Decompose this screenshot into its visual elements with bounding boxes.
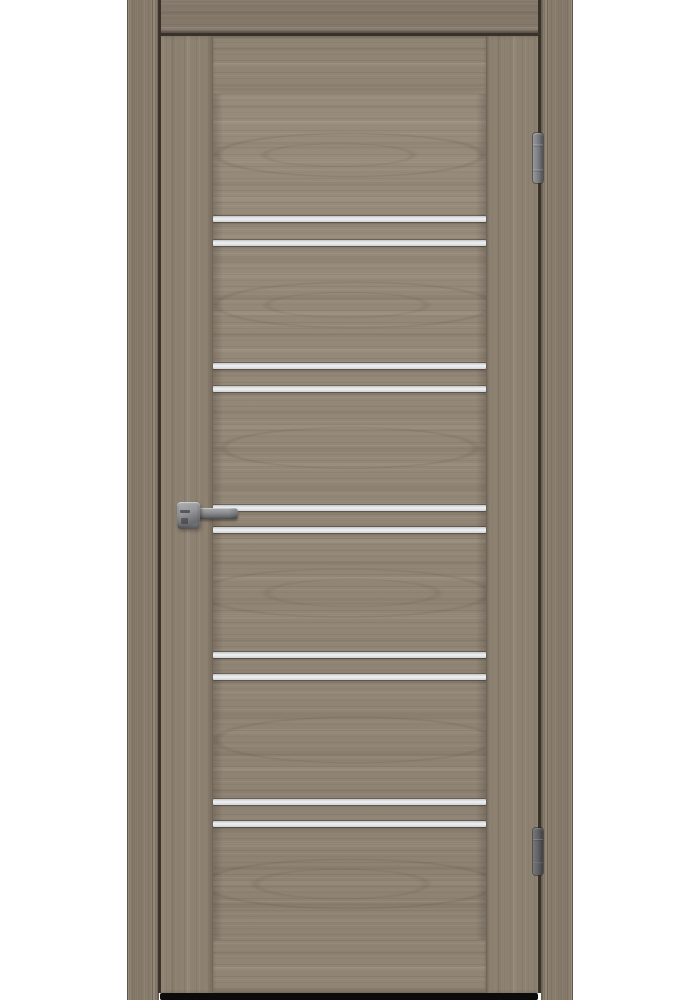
glass-stripe-1 bbox=[213, 216, 486, 222]
frame-casing-left bbox=[127, 0, 159, 1000]
door-handle-rosette bbox=[177, 502, 200, 529]
hinge-bottom bbox=[533, 828, 543, 875]
hinge-top bbox=[533, 133, 543, 183]
leaf-stile-right bbox=[486, 36, 538, 993]
door-product-photo bbox=[0, 0, 700, 1000]
glass-stripe-3 bbox=[213, 363, 486, 369]
glass-stripe-6 bbox=[213, 527, 486, 533]
frame-casing-right bbox=[541, 0, 573, 1000]
glass-stripe-5 bbox=[213, 505, 486, 511]
frame-casing-head bbox=[159, 0, 541, 33]
leaf-top-rail bbox=[213, 36, 486, 96]
glass-stripe-2 bbox=[213, 240, 486, 246]
glass-stripe-7 bbox=[213, 652, 486, 658]
glass-stripe-10 bbox=[213, 821, 486, 827]
glass-stripe-9 bbox=[213, 799, 486, 805]
glass-stripe-4 bbox=[213, 386, 486, 392]
floor-shadow bbox=[160, 993, 538, 1000]
leaf-bottom-rail bbox=[213, 938, 486, 993]
frame-reveal-gap-top bbox=[159, 33, 541, 36]
glass-stripe-8 bbox=[213, 674, 486, 680]
door-handle-lever bbox=[195, 508, 238, 519]
frame-reveal-gap-left bbox=[158, 0, 161, 993]
